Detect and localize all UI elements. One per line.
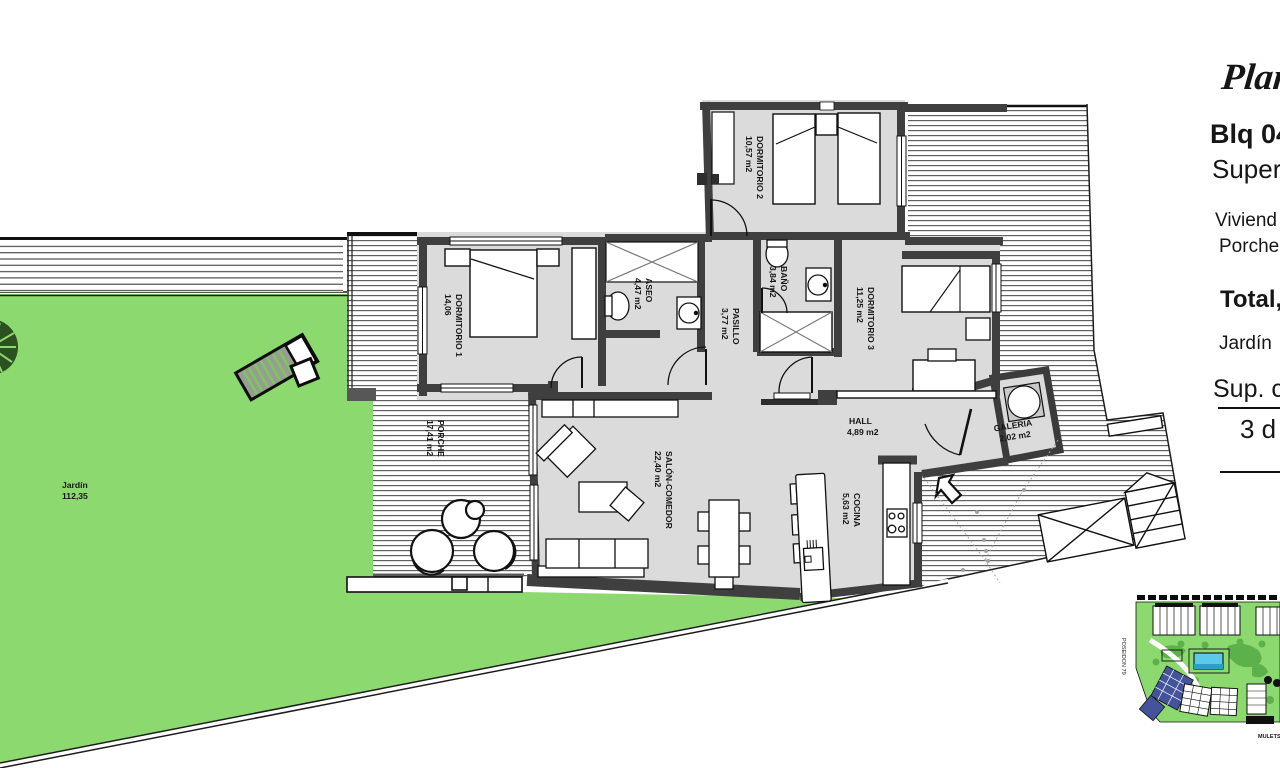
svg-text:POSEIDON 79: POSEIDON 79	[1120, 638, 1126, 675]
svg-text:Sup. co: Sup. co	[1213, 375, 1280, 403]
svg-text:COCINA: COCINA	[852, 493, 862, 527]
svg-text:4,89 m2: 4,89 m2	[847, 427, 879, 437]
svg-text:112,35: 112,35	[62, 491, 88, 501]
svg-text:11,25 m2: 11,25 m2	[855, 287, 865, 323]
svg-text:3 d: 3 d	[1240, 414, 1276, 444]
svg-text:HALL: HALL	[849, 416, 872, 426]
svg-text:Super: Super	[1212, 154, 1280, 184]
svg-text:Viviend: Viviend	[1215, 210, 1277, 231]
svg-text:DORMITORIO 3: DORMITORIO 3	[866, 287, 876, 350]
svg-text:BAÑO: BAÑO	[779, 266, 789, 292]
svg-text:Planta: Planta	[1219, 57, 1280, 98]
svg-text:Blq 04: Blq 04	[1210, 119, 1280, 149]
svg-text:5,63 m2: 5,63 m2	[841, 493, 851, 525]
svg-text:17,41 m2: 17,41 m2	[425, 420, 435, 457]
svg-text:4,47 m2: 4,47 m2	[633, 278, 643, 310]
svg-text:ASEO: ASEO	[644, 278, 654, 303]
svg-text:Jardín: Jardín	[62, 480, 88, 490]
svg-text:3,77 m2: 3,77 m2	[720, 308, 730, 340]
svg-text:PORCHE: PORCHE	[436, 420, 446, 457]
svg-text:DORMITORIO 1: DORMITORIO 1	[454, 294, 464, 357]
svg-text:SALÓN-COMEDOR: SALÓN-COMEDOR	[664, 451, 675, 530]
svg-text:10,57 m2: 10,57 m2	[744, 136, 754, 173]
svg-text:MULETSL 79: MULETSL 79	[1258, 734, 1280, 740]
svg-text:Total,: Total,	[1220, 286, 1280, 313]
svg-text:Jardín: Jardín	[1219, 333, 1272, 354]
svg-text:DORMITORIO 2: DORMITORIO 2	[755, 136, 765, 199]
svg-text:Porche: Porche	[1219, 236, 1279, 257]
svg-text:PASILLO: PASILLO	[731, 308, 741, 345]
svg-text:14,06: 14,06	[443, 294, 453, 316]
svg-text:22,40 m2: 22,40 m2	[653, 451, 663, 488]
